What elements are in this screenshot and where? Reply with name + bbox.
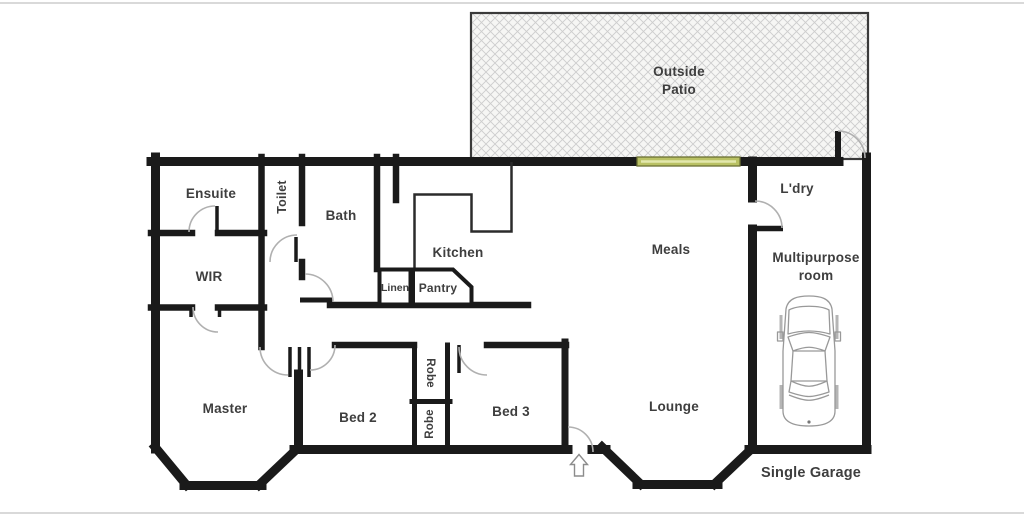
- room-label-robe-lower: Robe: [421, 409, 439, 439]
- room-label-ldry: L'dry: [780, 180, 813, 198]
- room-label-pantry: Pantry: [419, 279, 458, 297]
- room-label-robe-upper: Robe: [421, 358, 439, 388]
- patio-label-line1: Outside: [653, 64, 705, 79]
- entry-arrow-icon: [571, 455, 588, 477]
- floor-plan-drawing: [0, 0, 1024, 516]
- room-label-wir: WIR: [196, 268, 223, 286]
- room-label-outside-patio: OutsidePatio: [653, 63, 705, 99]
- room-label-multipurpose: Multipurposeroom: [772, 249, 859, 285]
- room-label-master: Master: [203, 400, 248, 418]
- room-label-meals: Meals: [652, 241, 691, 259]
- room-label-linen: Linen: [381, 279, 409, 297]
- room-label-bath: Bath: [326, 207, 357, 225]
- patio-label-line2: Patio: [662, 82, 696, 97]
- room-label-kitchen: Kitchen: [433, 244, 484, 262]
- room-label-single-garage: Single Garage: [761, 464, 861, 482]
- door-jambs-and-leaves: [191, 131, 838, 377]
- room-label-bed3: Bed 3: [492, 403, 530, 421]
- room-label-ensuite: Ensuite: [186, 185, 236, 203]
- floor-plan-canvas: OutsidePatio Ensuite Toilet Bath WIR Kit…: [0, 0, 1024, 516]
- multipurpose-label-line2: room: [799, 268, 834, 283]
- multipurpose-label-line1: Multipurpose: [772, 250, 859, 265]
- car-icon: [778, 296, 841, 426]
- room-label-lounge: Lounge: [649, 398, 699, 416]
- room-label-bed2: Bed 2: [339, 409, 377, 427]
- sliding-door: [637, 157, 740, 166]
- room-label-toilet: Toilet: [273, 180, 291, 214]
